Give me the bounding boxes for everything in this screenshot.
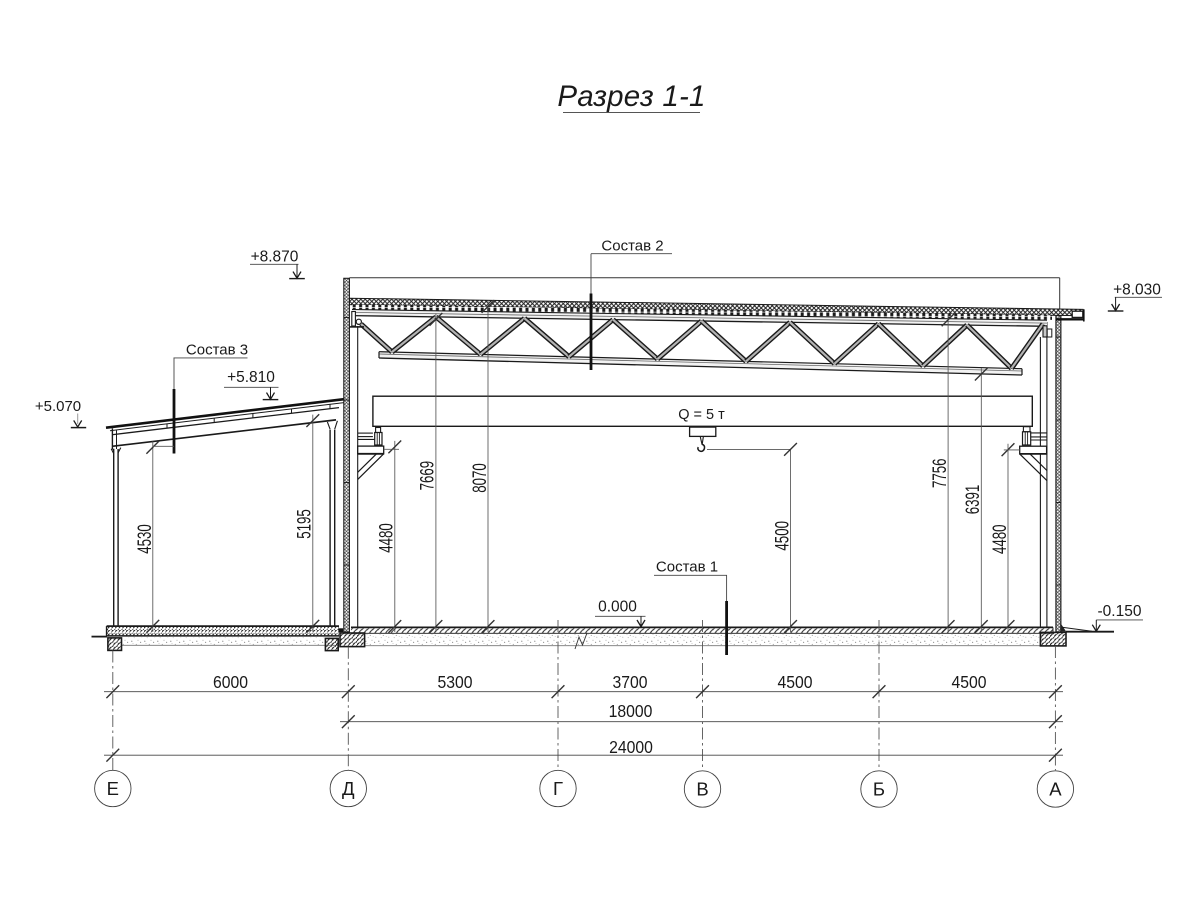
svg-text:Д: Д bbox=[342, 778, 355, 799]
svg-text:+8.030: +8.030 bbox=[1113, 282, 1161, 299]
svg-text:Состав 1: Состав 1 bbox=[656, 559, 718, 576]
svg-text:0.000: 0.000 bbox=[598, 599, 637, 616]
svg-text:3700: 3700 bbox=[612, 672, 647, 692]
svg-text:5195: 5195 bbox=[294, 509, 315, 539]
svg-text:7756: 7756 bbox=[930, 458, 951, 488]
svg-text:4480: 4480 bbox=[376, 523, 397, 553]
svg-text:Е: Е bbox=[107, 778, 119, 799]
svg-text:Q = 5 т: Q = 5 т bbox=[678, 407, 725, 423]
svg-text:8070: 8070 bbox=[470, 463, 491, 493]
svg-text:4530: 4530 bbox=[135, 524, 156, 554]
svg-text:В: В bbox=[696, 779, 708, 800]
svg-text:6000: 6000 bbox=[213, 672, 248, 692]
svg-text:4500: 4500 bbox=[772, 521, 793, 551]
svg-text:4500: 4500 bbox=[951, 672, 986, 692]
svg-text:-0.150: -0.150 bbox=[1098, 603, 1142, 620]
svg-text:5300: 5300 bbox=[437, 672, 472, 692]
svg-text:Состав 2: Состав 2 bbox=[601, 238, 663, 255]
svg-text:А: А bbox=[1049, 779, 1062, 800]
svg-text:4480: 4480 bbox=[990, 524, 1011, 554]
svg-text:Разрез 1-1: Разрез 1-1 bbox=[557, 80, 705, 113]
svg-text:6391: 6391 bbox=[963, 485, 984, 515]
svg-text:+5.810: +5.810 bbox=[227, 369, 275, 386]
svg-text:Состав 3: Состав 3 bbox=[186, 342, 248, 359]
svg-text:+5.070: +5.070 bbox=[35, 398, 81, 415]
svg-text:7669: 7669 bbox=[417, 461, 438, 491]
svg-text:+8.870: +8.870 bbox=[251, 249, 299, 266]
svg-text:Г: Г bbox=[553, 778, 563, 799]
svg-text:Б: Б bbox=[873, 779, 885, 800]
svg-text:24000: 24000 bbox=[609, 737, 653, 757]
svg-text:4500: 4500 bbox=[777, 672, 812, 692]
svg-text:18000: 18000 bbox=[609, 701, 653, 721]
